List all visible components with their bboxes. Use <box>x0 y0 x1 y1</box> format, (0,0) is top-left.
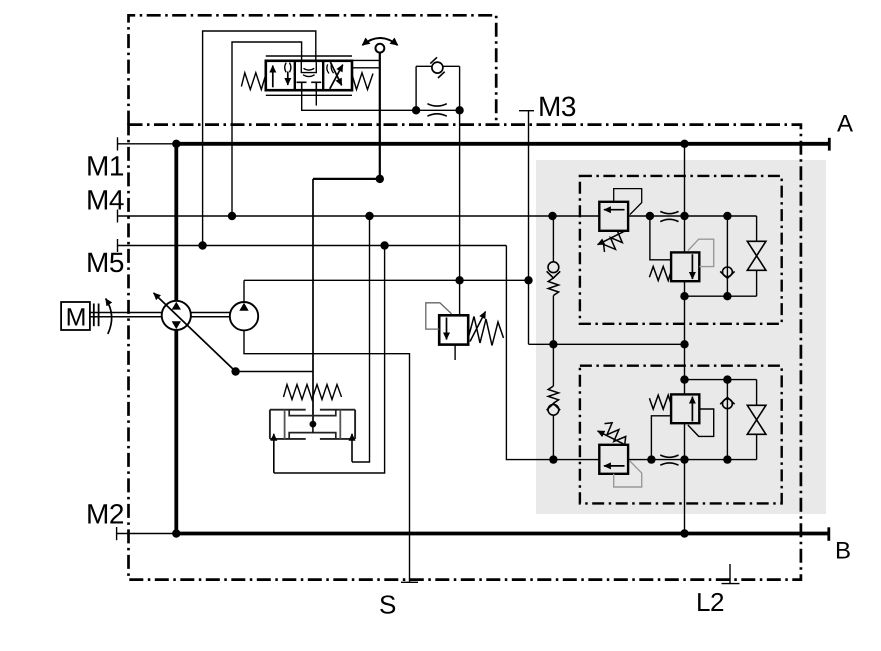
svg-text:M: M <box>66 304 86 332</box>
svg-text:B: B <box>835 538 851 565</box>
svg-text:L2: L2 <box>696 587 724 617</box>
svg-text:M1: M1 <box>86 151 124 182</box>
svg-text:M2: M2 <box>86 499 124 530</box>
svg-text:S: S <box>379 590 396 620</box>
svg-text:M4: M4 <box>86 185 124 216</box>
svg-text:M5: M5 <box>86 247 124 278</box>
svg-text:A: A <box>837 111 853 138</box>
svg-text:M3: M3 <box>538 91 576 122</box>
